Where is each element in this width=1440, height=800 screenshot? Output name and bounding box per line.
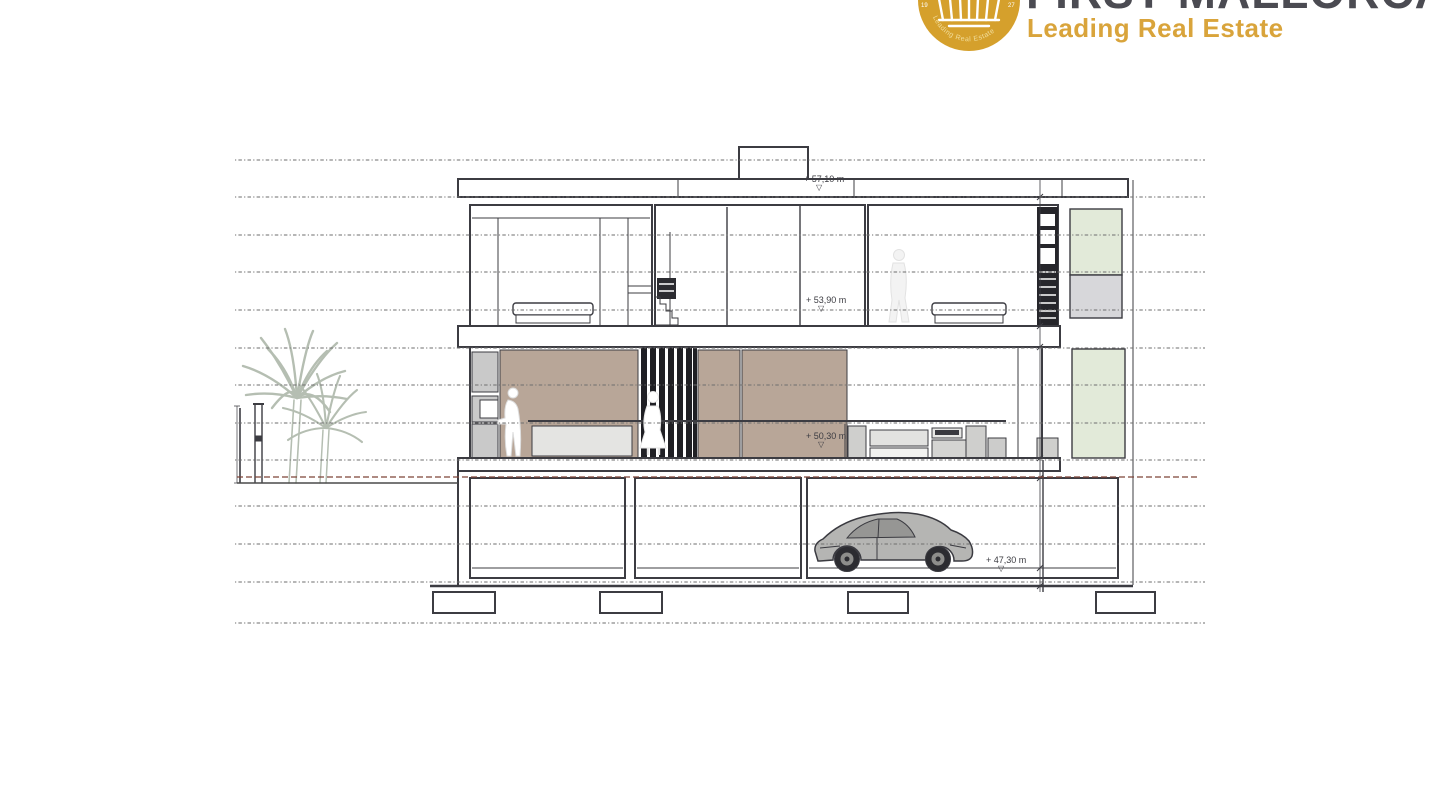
building-structure <box>430 147 1155 613</box>
elevation-label-garage: + 47,30 m <box>986 555 1026 565</box>
elevation-label-roof: + 57,10 m <box>804 174 844 184</box>
fence-section <box>234 404 264 483</box>
brand-tagline: Leading Real Estate <box>1027 13 1284 44</box>
emblem-year-left: 19 <box>921 3 928 9</box>
bed-icon <box>513 303 593 323</box>
benchmark-marker: ▽ <box>818 441 824 449</box>
benchmark-marker: ▽ <box>998 565 1004 573</box>
roof-group <box>458 147 1128 197</box>
elevation-label-main: + 50,30 m <box>806 431 846 441</box>
kitchen-cabinets <box>472 352 498 458</box>
foundation-group <box>430 586 1155 613</box>
emblem-year-right: 27 <box>1008 3 1015 9</box>
benchmark-marker: ▽ <box>816 184 822 192</box>
main-floor-group <box>470 347 1058 460</box>
bed-icon <box>932 303 1006 323</box>
elevation-label-upper: + 53,90 m <box>806 295 846 305</box>
green-panel-upper <box>1070 209 1122 318</box>
upper-floor-group <box>470 205 1058 326</box>
taupe-wall <box>698 350 740 458</box>
counter-base <box>532 426 632 456</box>
section-drawing <box>0 0 1440 800</box>
benchmark-marker: ▽ <box>818 305 824 313</box>
green-panel-lower <box>1072 349 1125 458</box>
taupe-wall <box>742 350 847 458</box>
page: + 57,10 m ▽ + 53,90 m ▽ + 50,30 m ▽ + 47… <box>0 0 1440 800</box>
living-furniture <box>845 424 1058 458</box>
brand-emblem-icon: Leading Real Estate 19 27 <box>916 0 1022 53</box>
